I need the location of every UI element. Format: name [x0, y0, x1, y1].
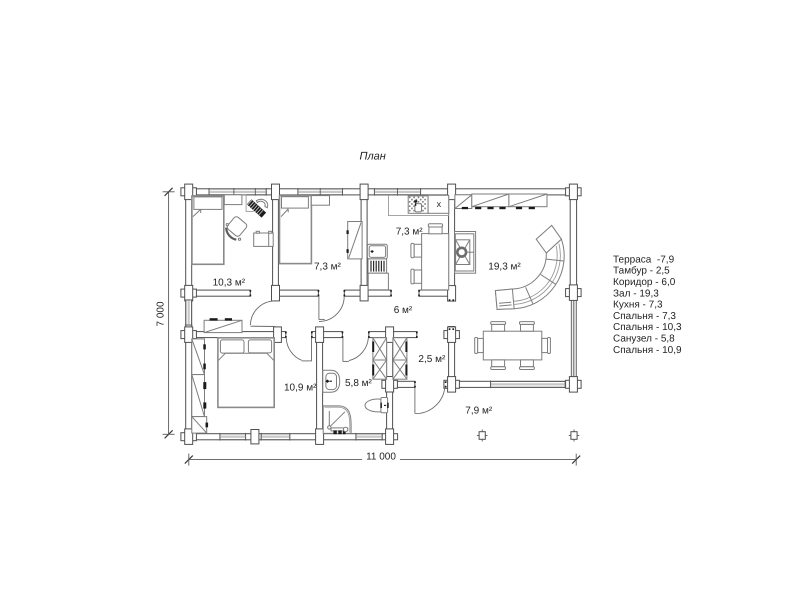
svg-text:Спальня - 7,3: Спальня - 7,3	[613, 311, 676, 322]
svg-text:7,3 м²: 7,3 м²	[314, 261, 342, 272]
svg-text:19,3 м²: 19,3 м²	[488, 261, 521, 272]
svg-text:Санузел - 5,8: Санузел - 5,8	[613, 334, 675, 345]
svg-text:10,3 м²: 10,3 м²	[213, 277, 246, 288]
svg-text:11 000: 11 000	[366, 451, 396, 462]
svg-text:6 м²: 6 м²	[394, 305, 413, 316]
svg-text:Спальня - 10,3: Спальня - 10,3	[613, 322, 682, 333]
svg-text:Коридор - 6,0: Коридор - 6,0	[613, 277, 676, 288]
svg-text:Кухня - 7,3: Кухня - 7,3	[613, 300, 663, 311]
svg-text:План: План	[360, 151, 386, 163]
svg-text:Зал - 19,3: Зал - 19,3	[613, 288, 659, 299]
svg-text:Терраса -7,9: Терраса -7,9	[613, 254, 675, 265]
svg-text:5,8 м²: 5,8 м²	[345, 378, 373, 389]
svg-text:x: x	[437, 199, 442, 209]
svg-text:Тамбур - 2,5: Тамбур - 2,5	[613, 266, 670, 277]
svg-text:10,9 м²: 10,9 м²	[284, 382, 317, 393]
svg-text:7 000: 7 000	[155, 301, 166, 326]
svg-text:7,3 м²: 7,3 м²	[396, 227, 424, 238]
svg-text:7,9 м²: 7,9 м²	[465, 406, 493, 417]
svg-text:Спальня - 10,9: Спальня - 10,9	[613, 345, 682, 356]
svg-text:2,5 м²: 2,5 м²	[418, 354, 446, 365]
